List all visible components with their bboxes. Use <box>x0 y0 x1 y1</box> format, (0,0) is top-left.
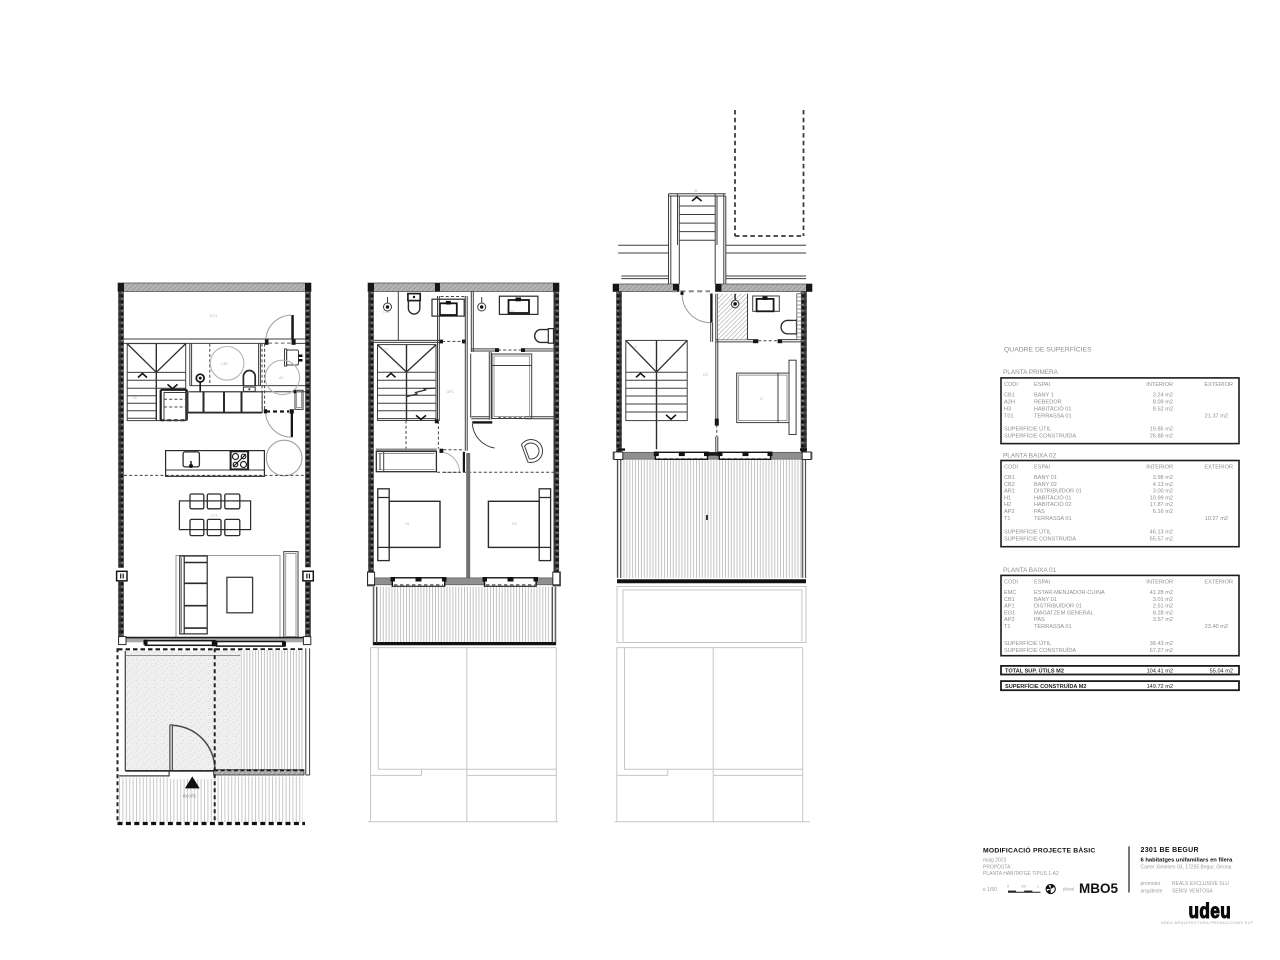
svg-text:02: 02 <box>384 348 388 352</box>
svg-text:Carrer Ximenes 03, 17255 Begur: Carrer Ximenes 03, 17255 Begur, Girona <box>1141 865 1232 871</box>
svg-text:3.01 m2: 3.01 m2 <box>1153 597 1173 603</box>
svg-text:PROPOSTA: PROPOSTA <box>983 864 1011 870</box>
svg-text:TERRASSA 01: TERRASSA 01 <box>1034 624 1072 630</box>
svg-text:EXTERIOR: EXTERIOR <box>1204 580 1233 586</box>
svg-text:CODI: CODI <box>1004 465 1018 471</box>
svg-text:H: H <box>760 397 763 401</box>
svg-text:HABITACIÓ 02: HABITACIÓ 02 <box>1034 501 1072 508</box>
svg-text:Accés: Accés <box>183 794 197 800</box>
svg-text:PLANTA BAIXA 02: PLANTA BAIXA 02 <box>1003 453 1057 460</box>
svg-text:AR1: AR1 <box>1004 489 1015 495</box>
svg-text:EG1: EG1 <box>1004 610 1015 616</box>
svg-text:SUPERFÍCIE CONSTRUÏDA: SUPERFÍCIE CONSTRUÏDA <box>1004 647 1076 654</box>
svg-text:H1: H1 <box>405 522 410 526</box>
svg-text:CODI: CODI <box>1004 580 1018 586</box>
svg-text:17.87 m2: 17.87 m2 <box>1150 502 1173 508</box>
svg-text:8.28 m2: 8.28 m2 <box>1153 610 1173 616</box>
svg-text:ESTAR-MENJADOR-CUINA: ESTAR-MENJADOR-CUINA <box>1034 590 1105 596</box>
svg-text:CB1: CB1 <box>1004 597 1015 603</box>
svg-text:26.88 m2: 26.88 m2 <box>1150 434 1173 440</box>
svg-text:6.16 m2: 6.16 m2 <box>1153 509 1173 515</box>
svg-text:ESPAI: ESPAI <box>1034 465 1051 471</box>
svg-text:ESPAI: ESPAI <box>1034 382 1051 388</box>
svg-text:plànol: plànol <box>1063 887 1074 892</box>
svg-text:e 1/50: e 1/50 <box>983 887 997 893</box>
svg-text:SUPERFÍCIE ÚTIL: SUPERFÍCIE ÚTIL <box>1004 426 1051 433</box>
svg-text:8.52 m2: 8.52 m2 <box>1153 407 1173 413</box>
svg-text:SUPERFÍCIE ÚTIL: SUPERFÍCIE ÚTIL <box>1004 529 1051 536</box>
svg-text:H2: H2 <box>512 522 517 526</box>
svg-text:udeu: udeu <box>1189 899 1232 923</box>
svg-text:3.24 m2: 3.24 m2 <box>1153 393 1173 399</box>
svg-text:41.28 m2: 41.28 m2 <box>1150 590 1173 596</box>
svg-text:38.43 m2: 38.43 m2 <box>1150 641 1173 647</box>
svg-text:3.98 m2: 3.98 m2 <box>1153 475 1173 481</box>
svg-text:1: 1 <box>1037 885 1039 889</box>
svg-text:UDEU ARQUITECTURA PRODUCCIONS: UDEU ARQUITECTURA PRODUCCIONS SLP <box>1161 921 1253 925</box>
svg-text:PAS: PAS <box>1034 617 1045 623</box>
svg-text:10.27 m2: 10.27 m2 <box>1205 516 1228 522</box>
svg-text:CB1: CB1 <box>1004 393 1015 399</box>
svg-text:03: 03 <box>633 345 637 349</box>
svg-text:promotor: promotor <box>1141 881 1161 887</box>
svg-text:MODIFICACIÓ PROJECTE BÀSIC: MODIFICACIÓ PROJECTE BÀSIC <box>983 846 1095 855</box>
svg-text:HABITACIÓ 01: HABITACIÓ 01 <box>1034 406 1072 413</box>
svg-text:BANY 1: BANY 1 <box>1034 393 1054 399</box>
svg-text:21.37 m2: 21.37 m2 <box>1205 414 1228 420</box>
svg-text:T1: T1 <box>1004 516 1011 522</box>
svg-text:TERRASSA 01: TERRASSA 01 <box>1034 516 1072 522</box>
svg-text:PLANTA PRIMERA: PLANTA PRIMERA <box>1003 369 1059 376</box>
svg-text:EXTERIOR: EXTERIOR <box>1204 465 1233 471</box>
svg-text:104.41 m2: 104.41 m2 <box>1147 669 1173 675</box>
svg-text:CODI: CODI <box>1004 382 1018 388</box>
svg-text:3.57 m2: 3.57 m2 <box>1153 617 1173 623</box>
svg-text:MBO5: MBO5 <box>1079 881 1118 896</box>
svg-text:H3: H3 <box>703 373 708 377</box>
svg-text:REBEDOR: REBEDOR <box>1034 400 1062 406</box>
svg-text:T1: T1 <box>1004 624 1011 630</box>
svg-text:SUPERFÍCIE CONSTRUÏDA M2: SUPERFÍCIE CONSTRUÏDA M2 <box>1005 682 1087 690</box>
svg-text:PAS: PAS <box>1034 509 1045 515</box>
svg-text:2301 BE BEGUR: 2301 BE BEGUR <box>1141 847 1199 854</box>
svg-text:46.13 m2: 46.13 m2 <box>1150 530 1173 536</box>
svg-text:4.13 m2: 4.13 m2 <box>1153 482 1173 488</box>
svg-text:H1: H1 <box>1004 495 1011 501</box>
svg-text:TOTAL SUP. ÚTILS M2: TOTAL SUP. ÚTILS M2 <box>1005 668 1064 675</box>
svg-text:ESPAI: ESPAI <box>1034 580 1051 586</box>
svg-text:ET1: ET1 <box>211 514 217 518</box>
svg-text:55.57 m2: 55.57 m2 <box>1150 537 1173 543</box>
svg-text:19.85 m2: 19.85 m2 <box>1150 427 1173 433</box>
svg-text:EMC: EMC <box>1004 590 1016 596</box>
svg-text:6 habitatges unifamiliars en f: 6 habitatges unifamiliars en filera <box>1141 858 1234 864</box>
svg-text:AP2: AP2 <box>1004 617 1015 623</box>
svg-text:AP2: AP2 <box>1004 509 1015 515</box>
svg-text:67.27 m2: 67.27 m2 <box>1150 648 1173 654</box>
svg-text:0: 0 <box>1007 885 1009 889</box>
svg-text:maig 2023: maig 2023 <box>983 858 1007 864</box>
svg-text:AP1: AP1 <box>1004 604 1015 610</box>
svg-text:BANY 02: BANY 02 <box>1034 482 1057 488</box>
svg-text:INTERIOR: INTERIOR <box>1146 465 1173 471</box>
svg-text:CB1: CB1 <box>221 362 228 366</box>
svg-text:01: 01 <box>694 189 698 193</box>
svg-text:2.51 m2: 2.51 m2 <box>1153 604 1173 610</box>
svg-text:SUPERFÍCIE ÚTIL: SUPERFÍCIE ÚTIL <box>1004 640 1051 647</box>
svg-text:PLANTA HABITATGE TIPUS 1-A2: PLANTA HABITATGE TIPUS 1-A2 <box>983 871 1059 877</box>
svg-text:INTERIOR: INTERIOR <box>1146 580 1173 586</box>
svg-text:AP1: AP1 <box>447 390 454 394</box>
svg-text:10.99 m2: 10.99 m2 <box>1150 495 1173 501</box>
svg-text:CB1: CB1 <box>1004 475 1015 481</box>
svg-text:EG1: EG1 <box>210 314 217 318</box>
svg-text:DISTRIBUÏDOR 01: DISTRIBUÏDOR 01 <box>1034 603 1082 610</box>
svg-text:T01: T01 <box>1004 414 1014 420</box>
svg-text:DISTRIBUÏDOR 01: DISTRIBUÏDOR 01 <box>1034 488 1082 495</box>
svg-text:1/2: 1/2 <box>1021 885 1026 889</box>
svg-text:SERGI VENTOSA: SERGI VENTOSA <box>1172 889 1213 895</box>
svg-text:TERRASSA 01: TERRASSA 01 <box>1034 414 1072 420</box>
svg-text:23.40 m2: 23.40 m2 <box>1205 624 1228 630</box>
svg-text:H2: H2 <box>1004 502 1011 508</box>
svg-text:8.09 m2: 8.09 m2 <box>1153 400 1173 406</box>
svg-text:EXTERIOR: EXTERIOR <box>1204 382 1233 388</box>
svg-text:MAGATZEM GENERAL: MAGATZEM GENERAL <box>1034 610 1094 616</box>
svg-text:A2: A2 <box>279 376 283 380</box>
svg-text:SUPERFÍCIE CONSTRUÏDA: SUPERFÍCIE CONSTRUÏDA <box>1004 433 1076 440</box>
svg-text:3.00 m2: 3.00 m2 <box>1153 489 1173 495</box>
svg-text:55.04 m2: 55.04 m2 <box>1210 669 1233 675</box>
svg-text:BANY 01: BANY 01 <box>1034 475 1057 481</box>
svg-text:REALS EXCLUSIVE SLU: REALS EXCLUSIVE SLU <box>1172 881 1229 887</box>
svg-text:PLANTA BAIXA 01: PLANTA BAIXA 01 <box>1003 567 1057 574</box>
svg-text:02: 02 <box>133 396 137 400</box>
svg-text:BANY 01: BANY 01 <box>1034 597 1057 603</box>
svg-text:arquitecte: arquitecte <box>1141 889 1163 895</box>
svg-text:A2H: A2H <box>1004 400 1015 406</box>
svg-text:INTERIOR: INTERIOR <box>1146 382 1173 388</box>
svg-text:HABITACIÓ 01: HABITACIÓ 01 <box>1034 494 1072 501</box>
svg-text:H3: H3 <box>1004 407 1011 413</box>
svg-text:SUPERFÍCIE CONSTRUÏDA: SUPERFÍCIE CONSTRUÏDA <box>1004 536 1076 543</box>
svg-text:149.72 m2: 149.72 m2 <box>1147 684 1173 690</box>
svg-text:CB2: CB2 <box>1004 482 1015 488</box>
svg-text:QUADRE DE SUPERFÍCIES: QUADRE DE SUPERFÍCIES <box>1004 345 1092 354</box>
